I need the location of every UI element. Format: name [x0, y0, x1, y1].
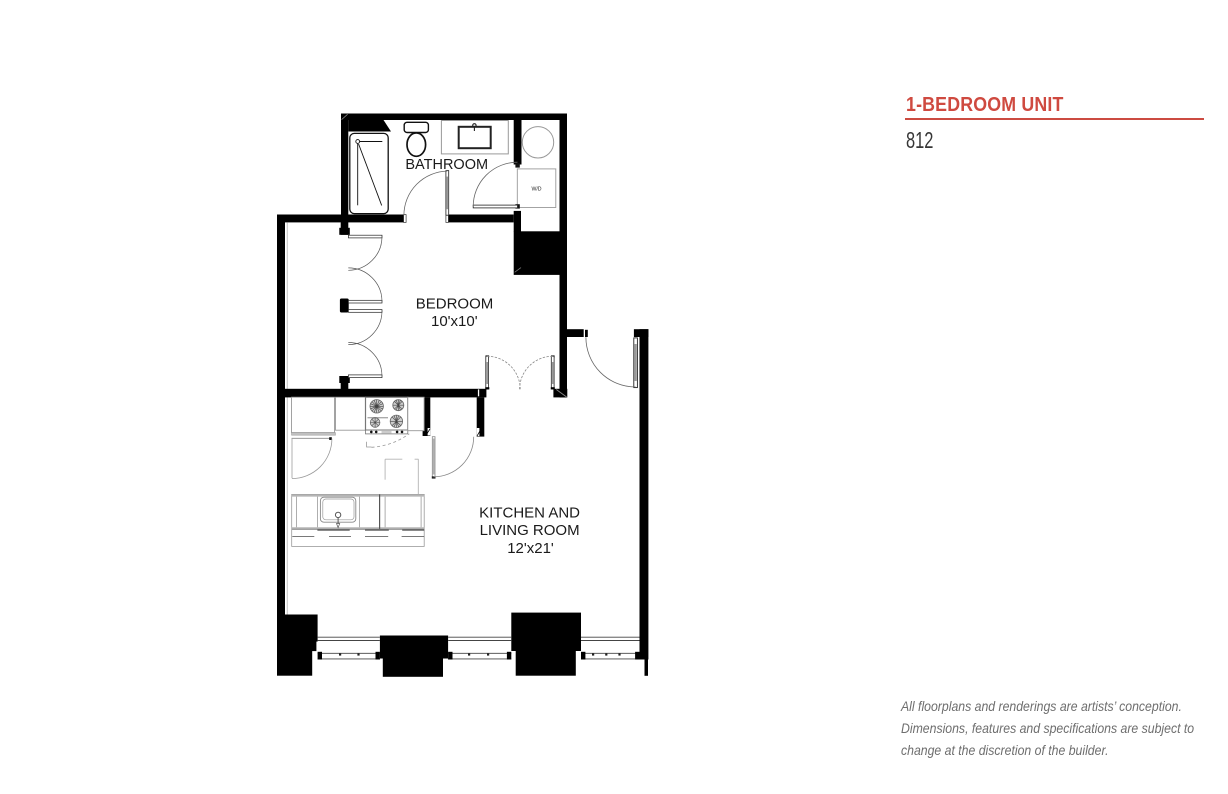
svg-text:W/D: W/D [531, 186, 541, 192]
svg-text:BEDROOM: BEDROOM [416, 295, 494, 312]
svg-text:LIVING ROOM: LIVING ROOM [480, 522, 580, 539]
svg-text:BATHROOM: BATHROOM [405, 157, 488, 173]
svg-text:10'x10': 10'x10' [431, 313, 478, 330]
svg-text:12'x21': 12'x21' [507, 540, 554, 557]
svg-text:KITCHEN AND: KITCHEN AND [479, 504, 580, 521]
